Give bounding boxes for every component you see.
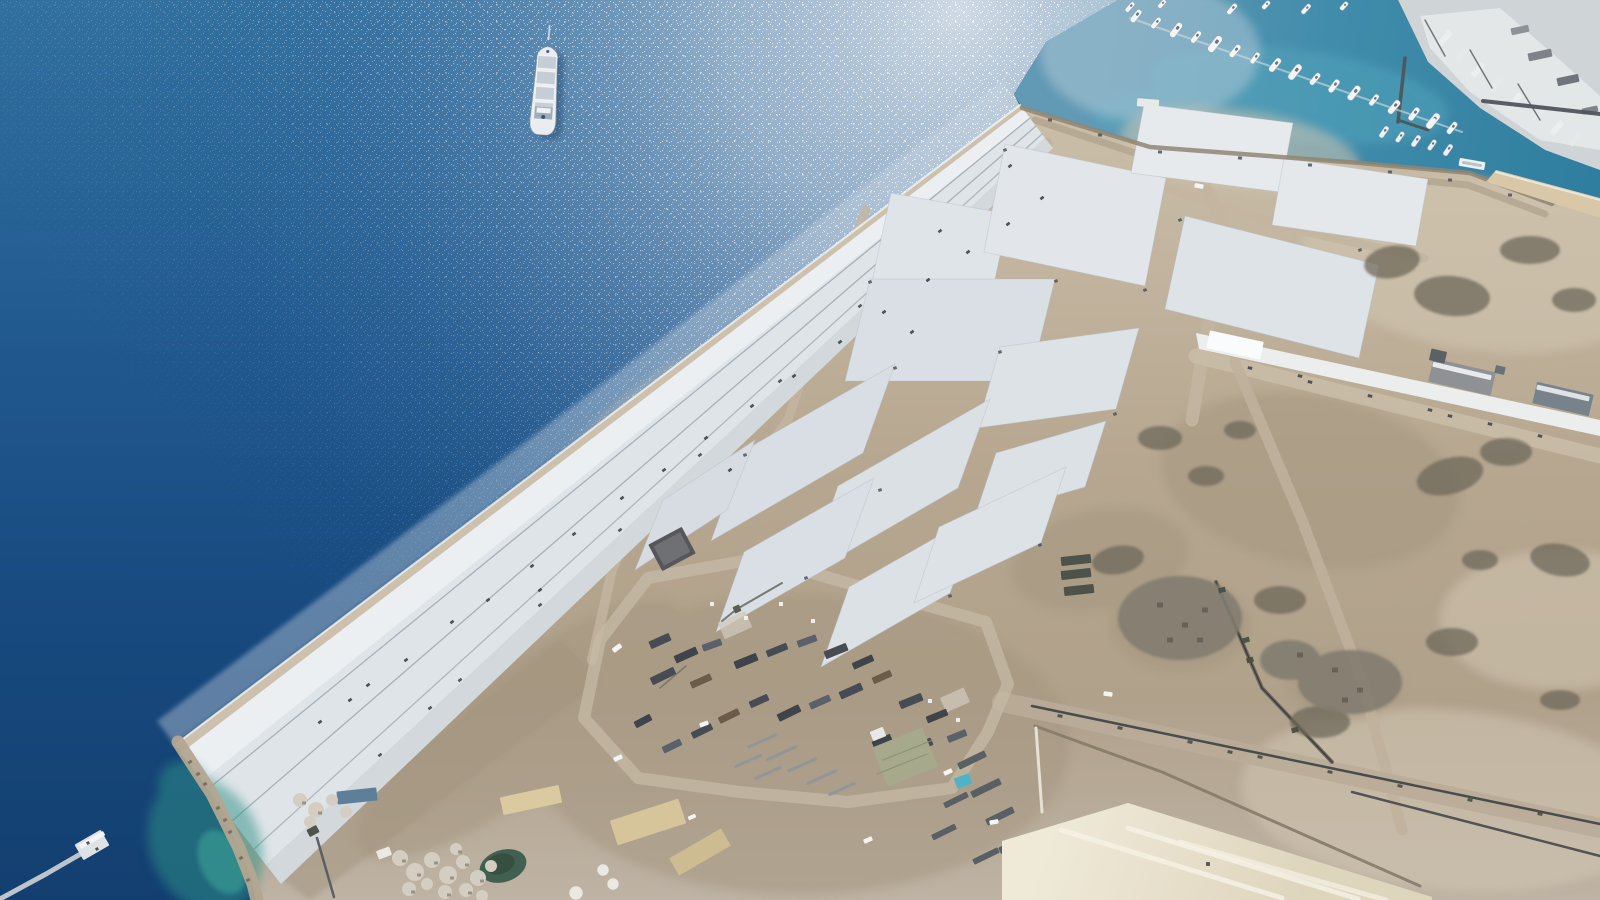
warehouse-vent [1206, 862, 1210, 866]
scene-svg [0, 0, 1600, 900]
aerial-photo: Aerial drone photo of a coastal port con… [0, 0, 1600, 900]
scene-root [0, 0, 1600, 900]
rebar-racks [1061, 554, 1095, 596]
